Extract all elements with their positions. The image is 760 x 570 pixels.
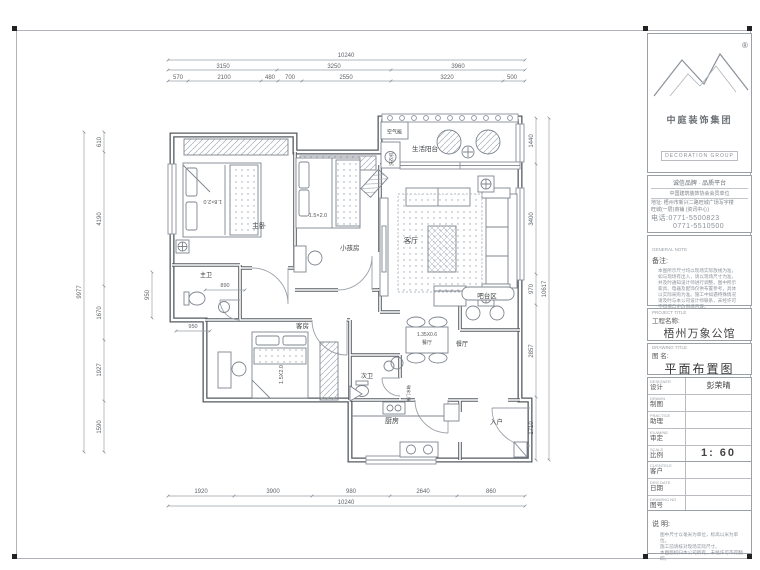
- guest-desk: [218, 352, 231, 388]
- balcony-chair: [437, 130, 461, 154]
- project-title-cn: 工程名称:: [652, 315, 747, 325]
- corner-mark: [747, 26, 752, 31]
- remark-line: 图中尺寸以毫米为单位，标高以米为单位。: [660, 532, 747, 544]
- master-sink: [219, 302, 230, 313]
- drawing-sheet: 主卧 小孩房 客厅 生活阳台 吧台区 餐厅 主卫 客房 次卫 厨房 入户 空气能…: [0, 0, 760, 570]
- company-name-en: DECORATION GROUP: [661, 151, 738, 161]
- slogan: 诚信品牌 · 品质平台: [651, 178, 748, 189]
- svg-text:700: 700: [285, 75, 296, 81]
- balcony-table: [462, 146, 474, 158]
- svg-text:1710: 1710: [529, 421, 535, 435]
- remark-title: 说 明:: [652, 521, 670, 528]
- svg-text:890: 890: [220, 283, 229, 289]
- corner-cabinet: [361, 169, 388, 197]
- svg-text:2857: 2857: [529, 344, 535, 358]
- svg-text:480: 480: [265, 75, 276, 81]
- label-dining-size: 1.35X0.6: [417, 332, 437, 338]
- svg-text:950: 950: [145, 289, 151, 300]
- downlight-icon: [176, 240, 189, 253]
- fridge-box: [444, 404, 459, 421]
- svg-text:3150: 3150: [216, 64, 230, 70]
- label-master-bath: 主卫: [200, 271, 212, 279]
- svg-text:1670: 1670: [97, 306, 103, 320]
- field-designer: DESIGNER设计 彭荣晴: [648, 378, 751, 395]
- svg-text:3960: 3960: [451, 64, 465, 70]
- remark-line: 本图版权归本公司所有，未经许可不得翻印。: [660, 550, 747, 562]
- master-wardrobe: [184, 139, 288, 155]
- svg-text:1590: 1590: [97, 420, 103, 434]
- company-info-block: 诚信品牌 · 品质平台 中国建筑装饰协会会员单位 地址: 梧州市新兴二路旺城广场…: [647, 175, 752, 233]
- svg-text:2550: 2550: [339, 75, 353, 81]
- label-master-bedroom: 主卧: [252, 221, 266, 230]
- svg-text:610: 610: [97, 136, 103, 147]
- fields-table-lower: CLIENTELE客户 DRG DATE日期 DRAWING NO图号: [647, 461, 752, 513]
- floor-plan: 主卧 小孩房 客厅 生活阳台 吧台区 餐厅 主卫 客房 次卫 厨房 入户 空气能…: [0, 0, 645, 570]
- company-logo-block: ® 中庭装饰集团 DECORATION GROUP: [647, 33, 752, 173]
- field-scale: SCALE比例 1: 60: [648, 446, 751, 462]
- svg-text:3220: 3220: [440, 75, 454, 81]
- kitchen-counter: [352, 402, 459, 457]
- drawing-name: 平面布置图: [652, 360, 747, 377]
- guest-chair: [232, 362, 246, 376]
- phone-line1: 电话:0771-5500823: [651, 213, 748, 223]
- scale-value: 1: 60: [686, 446, 751, 462]
- svg-text:3900: 3900: [266, 489, 280, 495]
- svg-text:500: 500: [507, 75, 518, 81]
- svg-text:980: 980: [346, 489, 357, 495]
- field-clientele: CLIENTELE客户: [648, 462, 751, 479]
- label-washer: 洗衣机: [388, 152, 395, 166]
- field-drawn: DRAWN制图: [648, 395, 751, 412]
- svg-text:860: 860: [486, 489, 497, 495]
- dim-bottom-total: 10240: [338, 500, 355, 506]
- kids-bed: [296, 158, 360, 228]
- field-examine: EXAMINE审定: [648, 429, 751, 446]
- fields-table-upper: DESIGNER设计 彭荣晴 DRAWN制图 PRACTICE助理 EXAMIN…: [647, 377, 752, 463]
- shoe-cabinet: [514, 442, 527, 457]
- dim-right-total: 10617: [542, 280, 548, 297]
- label-bar-area: 吧台区: [477, 291, 497, 300]
- stove: [400, 442, 438, 457]
- svg-text:3400: 3400: [529, 212, 535, 226]
- svg-text:3250: 3250: [327, 64, 341, 70]
- master-toilet: [184, 292, 205, 305]
- project-title-block: PROJECT TITLE 工程名称: 梧州万象公馆: [647, 308, 752, 341]
- svg-text:570: 570: [173, 75, 184, 81]
- svg-text:4190: 4190: [97, 212, 103, 226]
- designer-value: 彭荣晴: [686, 378, 751, 394]
- balcony-chair: [476, 130, 500, 154]
- dim-left-total: 9977: [77, 285, 83, 299]
- drawing-title-block: DRAWING TITLE 图 名: 平面布置图: [647, 343, 752, 375]
- address-line2: 旺城(一层)商铺 (资讯中心): [651, 206, 748, 213]
- label-fridge: 单门冰箱: [405, 385, 412, 402]
- kids-desk: [294, 246, 306, 272]
- label-kitchen: 厨房: [385, 416, 399, 425]
- remark-block: 说 明: 图中尺寸以毫米为单位，标高以米为单位。 施工前请核对现场实际尺寸。 本…: [647, 510, 752, 554]
- label-dining-table: 餐厅: [422, 339, 432, 346]
- member-line: 中国建筑装饰协会会员单位: [651, 189, 748, 199]
- general-note-cn: 备注:: [652, 256, 747, 266]
- label-air-heater: 空气能: [387, 129, 402, 136]
- tv-cabinet: [380, 198, 388, 296]
- drawing-title-cn: 图 名:: [652, 350, 747, 360]
- label-dining: 餐厅: [456, 340, 468, 348]
- registered-mark: ®: [742, 41, 748, 50]
- corner-mark: [747, 554, 752, 559]
- guest-wardrobe: [320, 342, 338, 400]
- logo-mountains-icon: ®: [648, 34, 751, 106]
- general-note-en: GENERAL NOTE: [652, 247, 687, 252]
- side-table-icon: [478, 176, 494, 192]
- project-name: 梧州万象公馆: [652, 325, 747, 341]
- sofa: [482, 188, 517, 294]
- kids-chair: [308, 251, 322, 265]
- label-guest-room: 客房: [296, 321, 309, 330]
- phone-line2: 0771-5510500: [651, 223, 748, 230]
- address-line1: 地址: 梧州市新兴二路旺城广场写字楼: [651, 199, 748, 206]
- general-note-block: GENERAL NOTE 备注: 本图所示尺寸均以现场实际放线为准， 如与现场有…: [647, 235, 752, 306]
- field-date: DRG DATE日期: [648, 479, 751, 496]
- svg-text:1927: 1927: [97, 363, 103, 377]
- guest-bed: [252, 332, 308, 398]
- field-practice: PRACTICE助理: [648, 412, 751, 429]
- label-balcony: 生活阳台: [412, 144, 438, 153]
- label-guest-bed-size: 1.5X2.0: [279, 365, 285, 384]
- second-sink: [384, 361, 394, 371]
- kitchen-sink: [383, 402, 405, 414]
- coffee-table: [428, 226, 456, 272]
- label-entry: 入户: [490, 417, 503, 426]
- svg-text:970: 970: [529, 283, 535, 294]
- dim-top-total: 10240: [338, 53, 355, 59]
- svg-text:1440: 1440: [529, 134, 535, 148]
- label-second-bath: 次卫: [361, 372, 373, 380]
- svg-text:1920: 1920: [194, 489, 208, 495]
- label-master-bed-size: 1.8×2.0: [203, 198, 222, 204]
- svg-text:2100: 2100: [217, 75, 231, 81]
- label-kids-bed-size: 1.5×2.0: [309, 213, 328, 219]
- label-living-room: 客厅: [404, 236, 418, 245]
- svg-text:2640: 2640: [416, 489, 430, 495]
- label-kids-room: 小孩房: [340, 243, 360, 252]
- svg-text:950: 950: [188, 324, 197, 330]
- company-name-cn: 中庭装饰集团: [648, 113, 751, 126]
